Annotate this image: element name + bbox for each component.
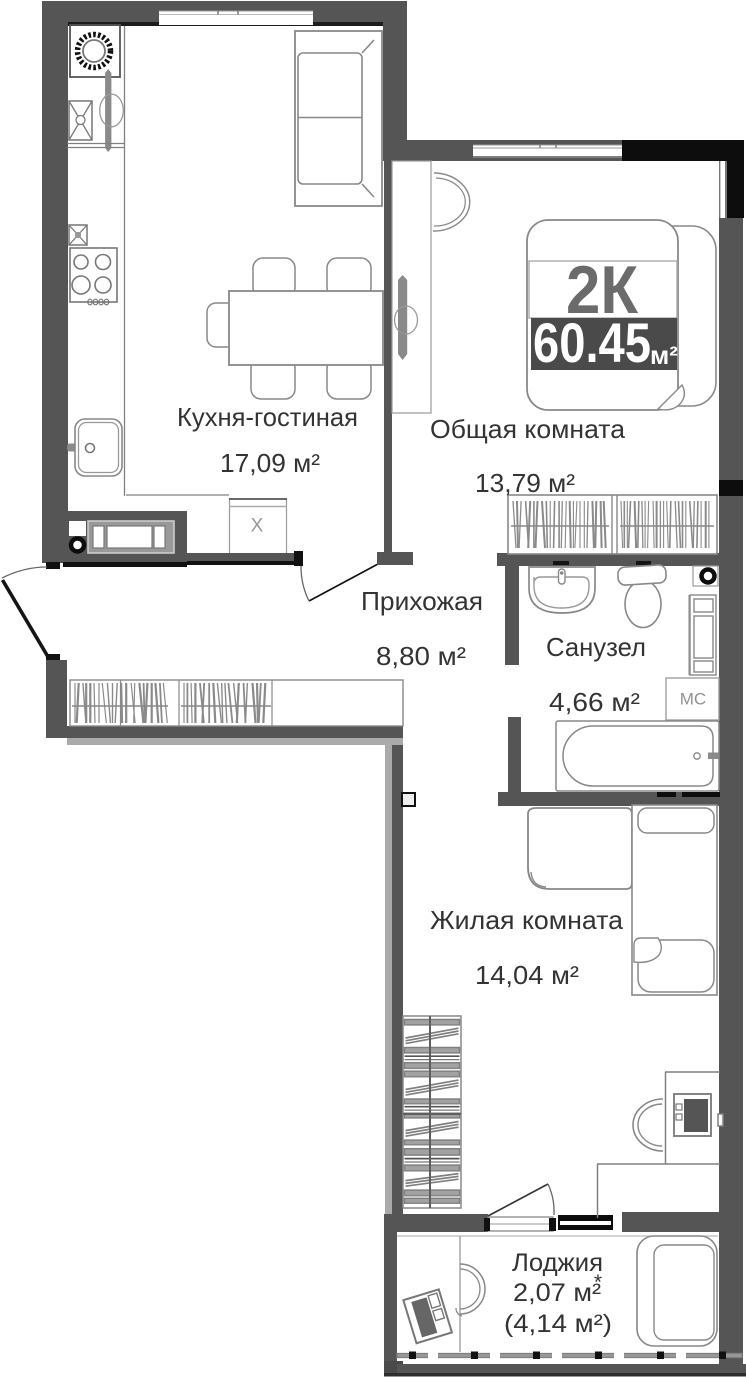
svg-text:2,07 м²: 2,07 м²	[513, 1279, 601, 1307]
svg-text:*: *	[594, 1271, 602, 1294]
svg-text:Лоджия: Лоджия	[512, 1249, 603, 1277]
svg-text:(4,14 м²): (4,14 м²)	[504, 1310, 612, 1338]
svg-text:60.45: 60.45	[533, 311, 651, 374]
svg-text:Кухня-гостиная: Кухня-гостиная	[177, 402, 358, 432]
svg-text:Санузел: Санузел	[546, 632, 646, 662]
svg-text:МС: МС	[680, 690, 706, 709]
svg-text:14,04 м²: 14,04 м²	[475, 960, 579, 990]
svg-text:Общая комната: Общая комната	[430, 414, 626, 444]
svg-text:17,09 м²: 17,09 м²	[220, 448, 320, 478]
svg-text:Жилая комната: Жилая комната	[430, 905, 624, 935]
svg-text:Прихожая: Прихожая	[361, 586, 483, 616]
svg-text:13,79 м²: 13,79 м²	[475, 468, 575, 498]
svg-text:4,66 м²: 4,66 м²	[549, 687, 640, 717]
svg-text:X: X	[251, 516, 264, 537]
svg-text:8,80 м²: 8,80 м²	[376, 641, 466, 671]
svg-text:м²: м²	[650, 342, 678, 370]
